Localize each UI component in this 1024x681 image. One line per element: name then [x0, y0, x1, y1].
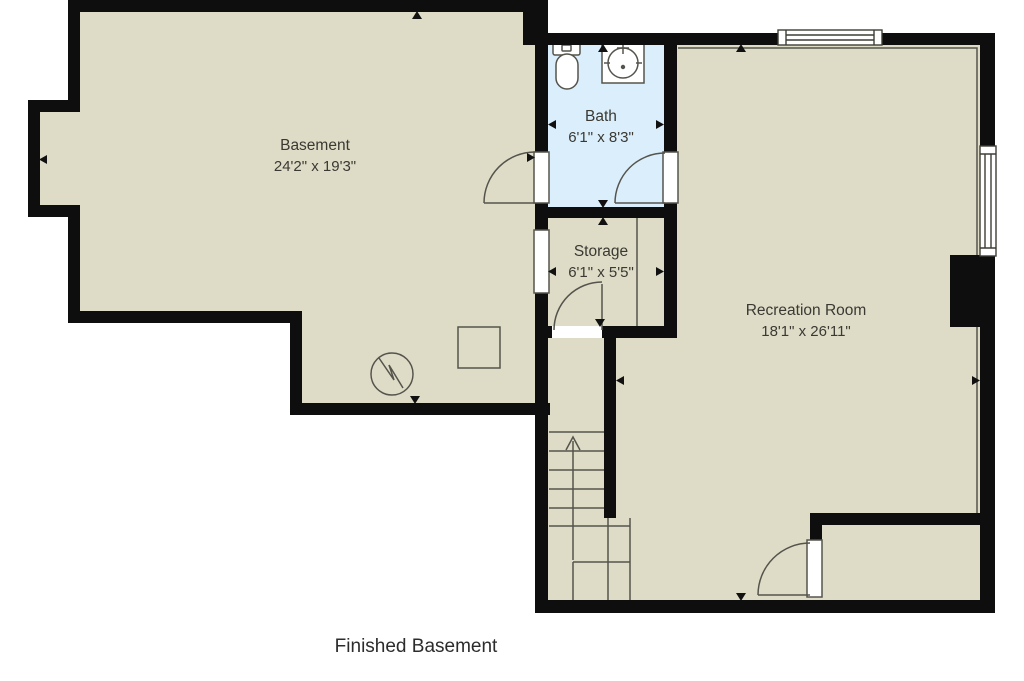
room-dimensions: 24'2" x 19'3" — [274, 157, 356, 177]
plan-title: Finished Basement — [335, 636, 498, 658]
wall — [68, 0, 80, 112]
toilet-icon — [553, 42, 580, 89]
room-name: Basement — [274, 136, 356, 156]
chimney-box — [950, 255, 995, 327]
wall — [535, 33, 548, 152]
wall — [68, 0, 548, 12]
wall — [882, 33, 993, 45]
wall — [535, 600, 993, 613]
wall — [810, 513, 995, 525]
stair-corridor-floor — [548, 338, 604, 600]
basement-floor-lower — [302, 311, 536, 403]
basement-storage-opening — [534, 230, 549, 293]
wall — [980, 33, 995, 147]
window-right-icon — [980, 146, 996, 256]
sink-icon — [602, 42, 644, 83]
room-dimensions: 6'1" x 8'3" — [568, 128, 634, 148]
wall — [810, 513, 822, 542]
recreation-room-label: Recreation Room 18'1" x 26'11" — [746, 301, 867, 342]
wall — [290, 311, 302, 415]
recreation-floor-left — [616, 338, 677, 600]
storage-label: Storage 6'1" x 5'5" — [568, 242, 634, 283]
stair-landing-floor — [604, 518, 616, 600]
bath-label: Bath 6'1" x 8'3" — [568, 107, 634, 148]
wall — [535, 293, 548, 613]
window-top-icon — [778, 30, 882, 45]
wall — [602, 326, 677, 338]
wall — [68, 205, 80, 323]
floor-plan-drawing — [0, 0, 1024, 681]
wall — [290, 403, 550, 415]
wall — [535, 326, 552, 338]
wall — [68, 311, 302, 323]
room-name: Bath — [568, 107, 634, 127]
wall — [664, 33, 677, 152]
wall — [604, 338, 616, 518]
wall — [28, 100, 40, 217]
wall — [535, 207, 677, 218]
floor-plan: Basement 24'2" x 19'3" Bath 6'1" x 8'3" … — [0, 0, 1024, 681]
basement-label: Basement 24'2" x 19'3" — [274, 136, 356, 177]
wall — [523, 33, 778, 45]
room-dimensions: 18'1" x 26'11" — [746, 322, 867, 342]
room-name: Recreation Room — [746, 301, 867, 321]
room-dimensions: 6'1" x 5'5" — [568, 263, 634, 283]
wall — [664, 203, 677, 338]
room-name: Storage — [568, 242, 634, 262]
